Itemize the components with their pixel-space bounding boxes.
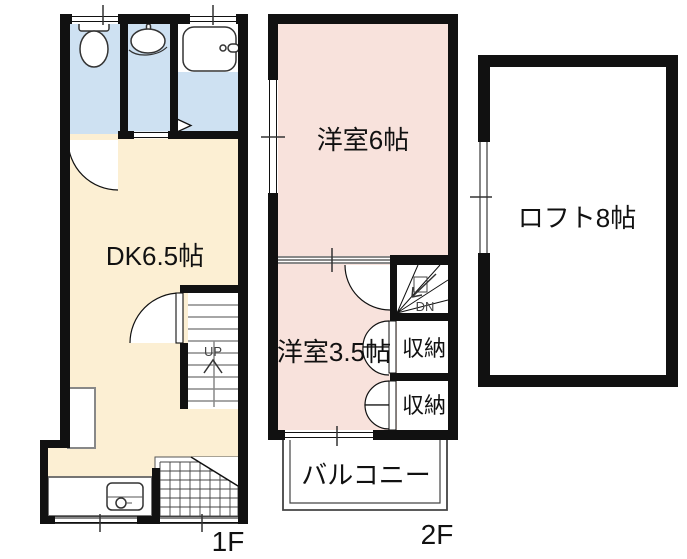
storage-nook: [68, 388, 95, 448]
plan-1f: UP: [40, 5, 248, 557]
plan-loft: ロフト8帖: [470, 55, 678, 387]
plan-2f: DN バルコニー: [261, 14, 458, 550]
floorplan-drawing: UP: [0, 0, 687, 559]
stairs-2f: DN: [397, 265, 448, 314]
bathtub-icon: [183, 27, 239, 71]
room-label-dk: DK6.5帖: [106, 241, 204, 271]
room-label-closet-upper: 収納: [402, 336, 446, 361]
stairs-down-label: DN: [416, 299, 435, 314]
window-marker: [190, 5, 236, 25]
balcony: バルコニー: [283, 440, 447, 510]
sink-drain: [116, 498, 126, 508]
kitchen-counter: [48, 477, 152, 516]
floorplan-canvas: UP: [0, 0, 687, 559]
door-leaf: [176, 293, 183, 343]
window-marker: [470, 142, 492, 253]
sliding-door-washroom: [134, 132, 168, 139]
room-label-western35: 洋室3.5帖: [277, 337, 391, 367]
stairs-up-label: UP: [204, 344, 222, 359]
room-label-balcony: バルコニー: [301, 460, 430, 490]
floor-label-1f: 1F: [212, 526, 245, 557]
room-label-closet-lower: 収納: [402, 393, 446, 418]
room-label-western6: 洋室6帖: [317, 125, 409, 155]
floor-label-2f: 2F: [421, 519, 454, 550]
stairs-1f: UP: [188, 293, 238, 409]
entrance-genkan: [155, 457, 238, 516]
window-marker: [72, 5, 118, 25]
room-label-loft: ロフト8帖: [518, 203, 636, 233]
toilet-icon: [79, 22, 109, 67]
door-leaf: [389, 381, 396, 430]
